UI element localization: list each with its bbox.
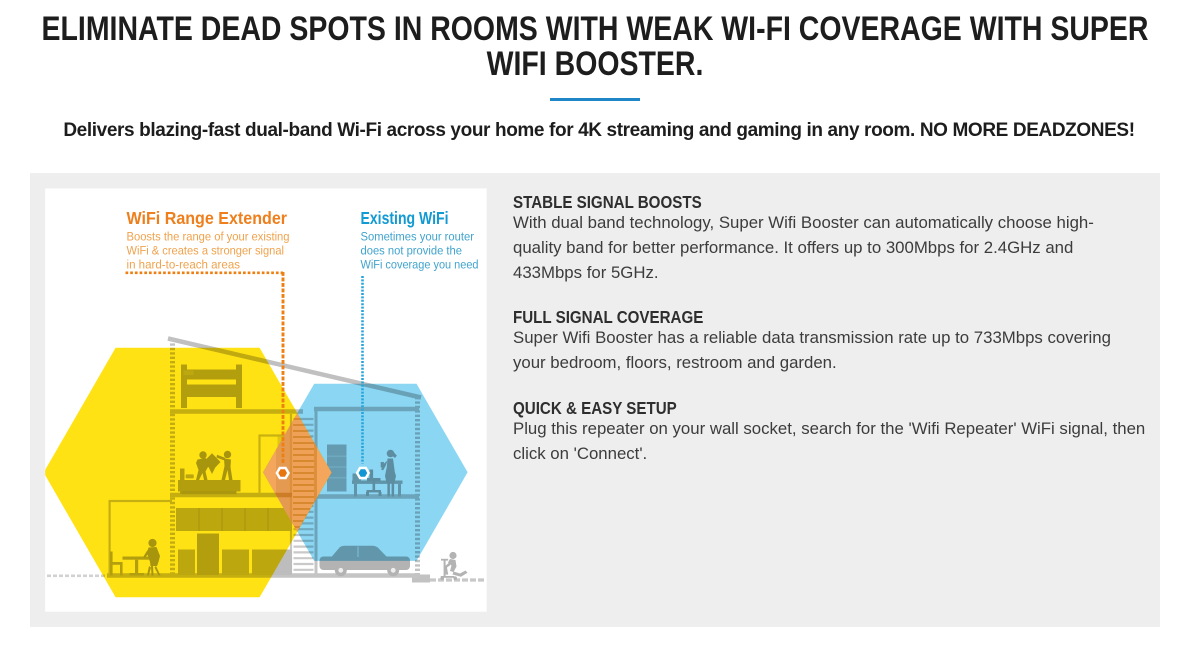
svg-text:WiFi & creates a stronger sign: WiFi & creates a stronger signal bbox=[127, 244, 285, 258]
svg-text:WiFi Range Extender: WiFi Range Extender bbox=[127, 208, 288, 228]
svg-text:Boosts the range of your exist: Boosts the range of your existing bbox=[127, 230, 290, 244]
svg-text:Existing WiFi: Existing WiFi bbox=[361, 208, 449, 228]
svg-text:WiFi coverage you need: WiFi coverage you need bbox=[361, 258, 479, 272]
svg-text:does not provide the: does not provide the bbox=[361, 244, 463, 258]
svg-text:Sometimes your router: Sometimes your router bbox=[361, 230, 475, 244]
svg-text:in hard-to-reach areas: in hard-to-reach areas bbox=[127, 258, 241, 272]
